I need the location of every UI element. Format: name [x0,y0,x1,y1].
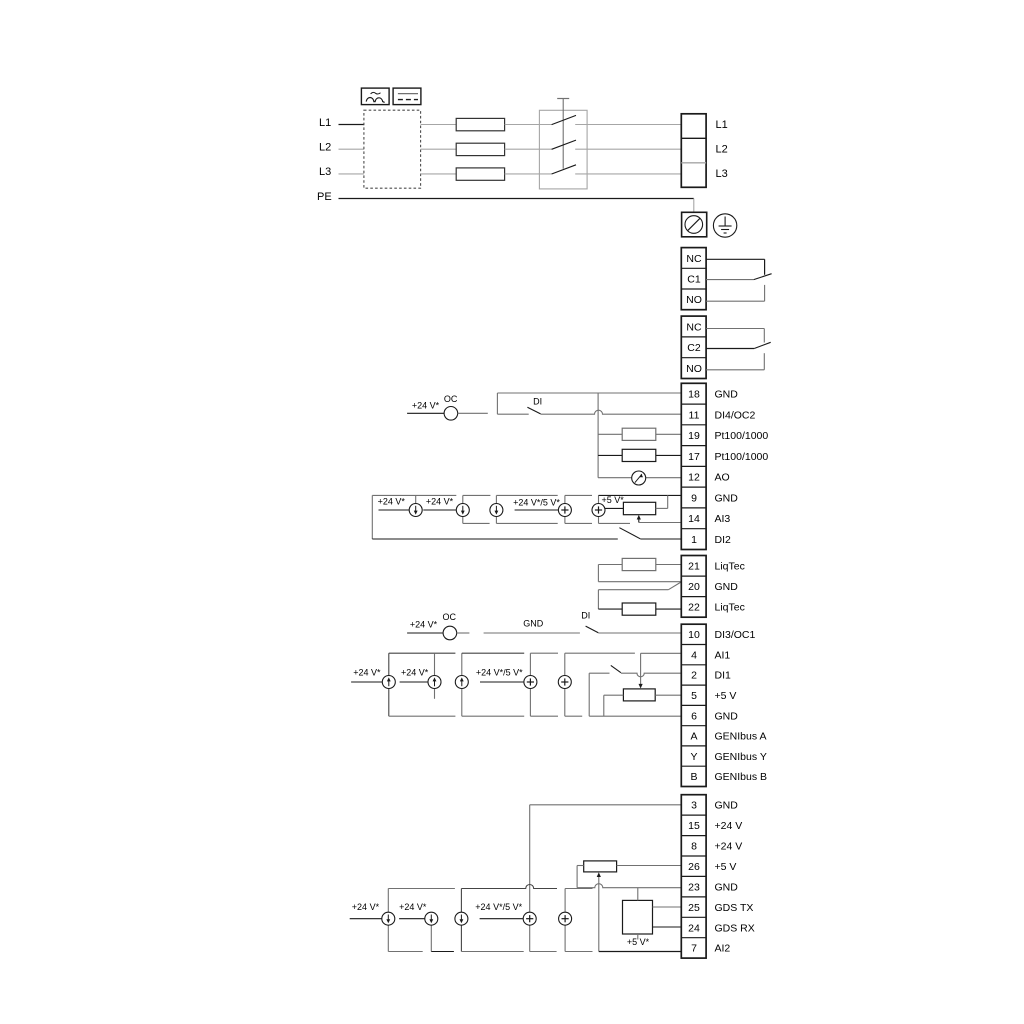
svg-text:GND: GND [715,881,739,893]
svg-text:GDS TX: GDS TX [715,902,754,914]
svg-text:11: 11 [689,409,700,421]
svg-text:NO: NO [686,363,702,375]
svg-text:L3: L3 [319,166,331,178]
svg-text:25: 25 [688,902,700,914]
svg-text:+24 V: +24 V [715,820,743,832]
svg-text:+24 V*: +24 V* [410,620,438,630]
svg-text:+24 V*/5 V*: +24 V*/5 V* [476,668,523,678]
svg-text:C1: C1 [687,274,701,286]
svg-text:4: 4 [691,649,697,661]
svg-text:L1: L1 [716,119,728,131]
svg-text:5: 5 [691,690,697,702]
svg-text:24: 24 [688,922,700,934]
svg-text:26: 26 [688,861,700,873]
svg-text:L1: L1 [319,117,331,129]
svg-text:2: 2 [691,670,697,682]
svg-text:DI: DI [533,396,542,406]
svg-text:L2: L2 [319,141,331,153]
svg-text:+24 V*: +24 V* [412,401,440,411]
svg-text:C2: C2 [687,342,701,354]
svg-text:DI3/OC1: DI3/OC1 [715,629,756,641]
svg-text:23: 23 [688,881,700,893]
svg-text:GENIbus Y: GENIbus Y [715,751,767,763]
svg-text:+24 V*: +24 V* [352,902,380,912]
svg-text:12: 12 [688,472,700,484]
svg-text:+5 V: +5 V [715,690,737,702]
svg-text:20: 20 [688,581,700,593]
svg-text:GND: GND [523,618,544,628]
svg-text:L2: L2 [716,144,728,156]
svg-text:GND: GND [715,710,739,722]
svg-text:19: 19 [688,430,700,442]
svg-text:+24 V*/5 V*: +24 V*/5 V* [513,497,560,507]
svg-text:OC: OC [444,394,458,404]
svg-text:NC: NC [686,321,702,333]
svg-text:NC: NC [686,253,702,265]
svg-text:7: 7 [691,943,697,955]
svg-text:DI: DI [581,611,590,621]
svg-text:AI2: AI2 [715,943,731,955]
svg-text:+24 V: +24 V [715,841,743,853]
svg-text:+24 V*: +24 V* [401,667,429,677]
svg-text:Y: Y [690,751,697,763]
svg-text:Pt100/1000: Pt100/1000 [715,451,769,463]
svg-text:+5 V*: +5 V* [627,937,650,947]
svg-text:+5 V*: +5 V* [602,495,625,505]
svg-text:3: 3 [691,800,697,812]
svg-text:+24 V*: +24 V* [399,902,427,912]
svg-text:+24 V*: +24 V* [353,667,381,677]
svg-text:B: B [690,771,697,783]
svg-text:17: 17 [688,451,700,463]
svg-text:AO: AO [715,472,730,484]
svg-text:+24 V*/5 V*: +24 V*/5 V* [475,902,522,912]
svg-text:14: 14 [688,513,700,525]
svg-text:LiqTec: LiqTec [715,561,745,573]
svg-text:+24 V*: +24 V* [378,496,406,506]
svg-text:GENIbus B: GENIbus B [715,771,768,783]
svg-text:Pt100/1000: Pt100/1000 [715,430,769,442]
svg-text:OC: OC [443,612,457,622]
svg-text:GND: GND [715,581,739,593]
svg-text:18: 18 [688,388,700,400]
svg-text:21: 21 [688,561,700,573]
svg-text:15: 15 [688,820,700,832]
svg-text:GENIbus A: GENIbus A [715,731,767,743]
svg-text:A: A [690,731,697,743]
svg-text:10: 10 [688,629,700,641]
svg-text:DI2: DI2 [715,534,732,546]
svg-text:AI1: AI1 [715,649,731,661]
svg-text:9: 9 [691,492,697,504]
svg-text:GDS RX: GDS RX [715,922,755,934]
svg-text:+24 V*: +24 V* [426,496,454,506]
svg-text:GND: GND [715,800,739,812]
svg-text:22: 22 [688,602,700,614]
svg-text:DI1: DI1 [715,670,732,682]
svg-text:DI4/OC2: DI4/OC2 [715,409,756,421]
svg-text:+5 V: +5 V [715,861,737,873]
svg-text:1: 1 [691,534,697,546]
svg-text:PE: PE [317,191,332,203]
svg-text:L3: L3 [716,168,728,180]
svg-text:6: 6 [691,710,697,722]
svg-text:GND: GND [715,388,739,400]
svg-text:GND: GND [715,492,739,504]
svg-text:NO: NO [686,294,702,306]
svg-text:LiqTec: LiqTec [715,602,745,614]
svg-text:AI3: AI3 [715,513,731,525]
svg-text:8: 8 [691,841,697,853]
